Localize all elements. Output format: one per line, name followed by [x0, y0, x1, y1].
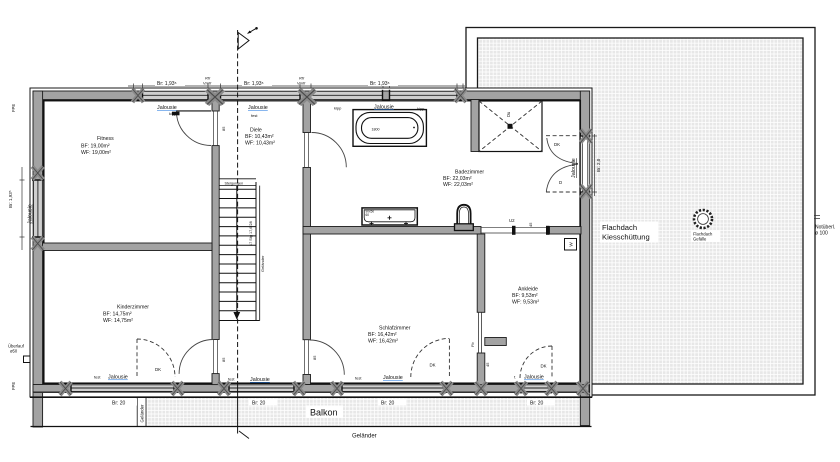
svg-text:85: 85 [221, 126, 226, 131]
svg-text:WF: 10,43m²: WF: 10,43m² [245, 140, 275, 146]
svg-text:Br: 20: Br: 20 [112, 400, 126, 406]
svg-text:WF: 9,53m²: WF: 9,53m² [512, 299, 539, 305]
svg-text:kipp: kipp [334, 106, 342, 111]
svg-text:WF: 19,00m²: WF: 19,00m² [81, 150, 111, 156]
svg-text:45: 45 [528, 222, 533, 227]
svg-text:Flachdach: Flachdach [602, 223, 637, 232]
svg-text:Jalousie: Jalousie [374, 105, 394, 111]
svg-text:Geländer: Geländer [260, 255, 265, 272]
svg-text:Kinderzimmer: Kinderzimmer [117, 305, 149, 311]
svg-text:Br: 1,93⁵: Br: 1,93⁵ [157, 81, 177, 87]
svg-text:Vmfr: Vmfr [297, 81, 306, 86]
svg-text:Du: Du [506, 111, 511, 117]
svg-text:W: W [568, 242, 573, 247]
svg-text:DK: DK [430, 363, 436, 368]
svg-text:f.: f. [514, 375, 516, 380]
svg-text:WF: 16,42m²: WF: 16,42m² [368, 338, 398, 344]
svg-text:FPE: FPE [11, 382, 16, 390]
svg-text:Geländer: Geländer [140, 404, 145, 423]
svg-text:Jalousie: Jalousie [571, 158, 577, 178]
svg-text:60: 60 [366, 213, 370, 217]
svg-text:fest: fest [94, 375, 101, 380]
svg-text:Br: 20: Br: 20 [530, 400, 544, 406]
svg-text:FPE: FPE [11, 104, 16, 112]
svg-text:kipp: kipp [417, 106, 425, 111]
svg-text:U2: U2 [509, 218, 515, 223]
svg-text:kipp: kipp [169, 111, 177, 116]
svg-text:ø50: ø50 [10, 349, 18, 354]
svg-text:Kiesschüttung: Kiesschüttung [602, 233, 650, 242]
svg-text:Fb: Fb [470, 342, 475, 347]
svg-text:Br: 1,93⁵: Br: 1,93⁵ [370, 81, 390, 87]
svg-text:D: D [559, 180, 562, 185]
svg-text:BF: 14,75m²: BF: 14,75m² [103, 312, 132, 318]
svg-text:Badezimmer: Badezimmer [455, 170, 484, 176]
svg-text:Br: 1,93⁵: Br: 1,93⁵ [244, 81, 264, 87]
svg-text:Jalousie: Jalousie [248, 105, 268, 111]
svg-text:Br: 1,93⁵: Br: 1,93⁵ [8, 190, 13, 208]
svg-text:fest: fest [228, 377, 235, 382]
svg-text:Jalousie: Jalousie [250, 377, 270, 383]
svg-text:BF: 22,03m²: BF: 22,03m² [443, 176, 472, 182]
svg-text:Br: 20: Br: 20 [252, 400, 266, 406]
svg-text:Jalousie: Jalousie [28, 204, 34, 224]
svg-text:45: 45 [485, 362, 490, 367]
svg-text:Balkon: Balkon [310, 408, 338, 418]
svg-text:BF: 10,43m²: BF: 10,43m² [245, 134, 274, 140]
svg-text:Jalousie: Jalousie [108, 375, 128, 381]
svg-text:Steigungen: Steigungen [225, 181, 244, 185]
svg-text:1800: 1800 [372, 128, 380, 132]
svg-text:Schlafzimmer: Schlafzimmer [379, 326, 411, 332]
svg-text:ø 100: ø 100 [815, 231, 828, 237]
svg-text:Jalousie: Jalousie [383, 375, 403, 381]
svg-text:Gefälle: Gefälle [693, 237, 707, 242]
svg-text:WF: 22,03m²: WF: 22,03m² [443, 182, 473, 188]
svg-text:85: 85 [221, 357, 226, 362]
svg-text:DK: DK [554, 142, 560, 147]
svg-text:fest: fest [251, 113, 258, 118]
svg-text:BF: 16,42m²: BF: 16,42m² [368, 332, 397, 338]
svg-text:DK: DK [155, 367, 161, 372]
svg-text:BF: 19,00m²: BF: 19,00m² [81, 144, 110, 150]
svg-text:BF: 9,53m²: BF: 9,53m² [512, 293, 538, 299]
svg-text:Br: 20: Br: 20 [381, 400, 395, 406]
svg-text:Vmfr: Vmfr [203, 81, 212, 86]
svg-text:85: 85 [312, 355, 317, 360]
svg-text:WF: 14,75m²: WF: 14,75m² [103, 318, 133, 324]
svg-text:DK: DK [541, 364, 547, 369]
svg-text:fest: fest [355, 376, 362, 381]
svg-text:Br: 2,0: Br: 2,0 [596, 158, 601, 172]
svg-text:17 Stg 17,6/28: 17 Stg 17,6/28 [249, 221, 253, 246]
svg-text:Fitness: Fitness [97, 136, 114, 142]
svg-text:Ankleide: Ankleide [518, 287, 538, 293]
svg-text:Diele: Diele [250, 128, 262, 134]
svg-text:Jalousie: Jalousie [524, 375, 544, 381]
svg-text:Geländer: Geländer [352, 434, 377, 440]
